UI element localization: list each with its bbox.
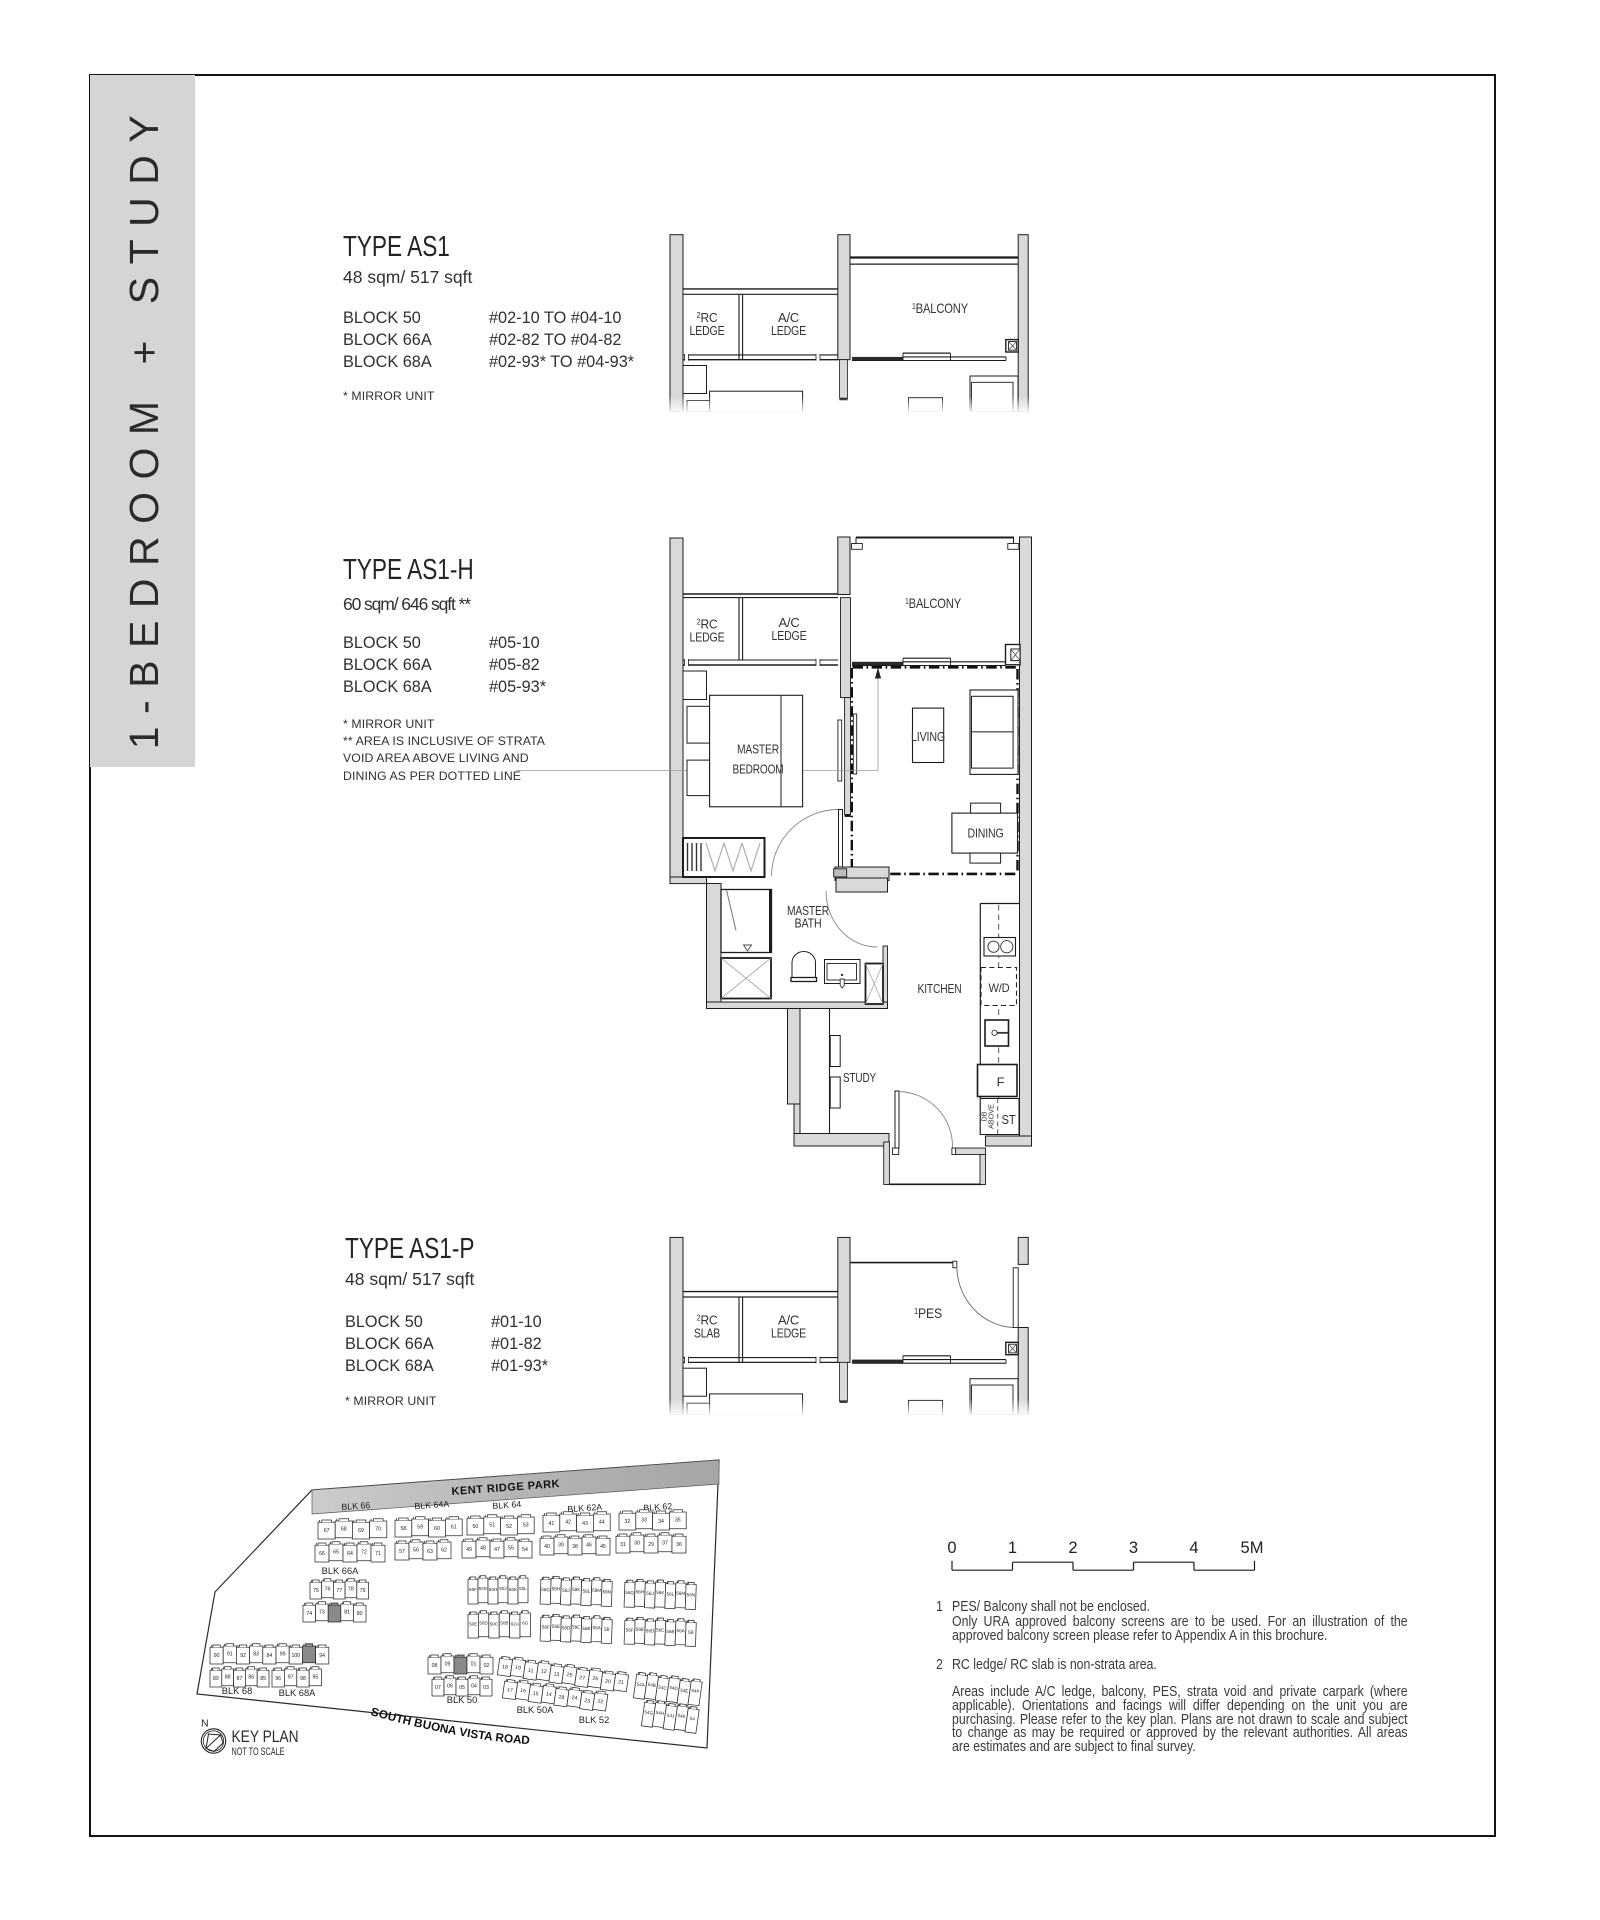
svg-text:32: 32 <box>625 1519 631 1525</box>
svg-text:BLK 50A: BLK 50A <box>517 1705 554 1715</box>
svg-text:58L: 58L <box>583 1589 591 1594</box>
svg-text:65: 65 <box>333 1550 339 1556</box>
svg-text:09: 09 <box>445 1662 451 1668</box>
svg-text:50K: 50K <box>509 1587 518 1592</box>
svg-text:58K: 58K <box>572 1587 581 1592</box>
svg-text:58E: 58E <box>552 1624 560 1629</box>
svg-text:17: 17 <box>507 1687 514 1694</box>
svg-text:02: 02 <box>484 1663 490 1669</box>
svg-text:99: 99 <box>280 1652 286 1658</box>
svg-text:36: 36 <box>676 1542 682 1548</box>
svg-text:62A: 62A <box>511 1622 520 1627</box>
svg-text:29: 29 <box>648 1542 654 1548</box>
svg-text:58F: 58F <box>542 1625 550 1630</box>
svg-text:14: 14 <box>545 1691 552 1698</box>
svg-text:20: 20 <box>605 1679 612 1686</box>
svg-text:50D: 50D <box>479 1620 488 1625</box>
svg-text:55: 55 <box>508 1546 514 1552</box>
svg-text:58D: 58D <box>562 1625 571 1630</box>
svg-text:56A: 56A <box>593 1625 602 1630</box>
svg-text:2: 2 <box>1068 1539 1077 1557</box>
svg-text:50E: 50E <box>469 1622 477 1627</box>
svg-text:43: 43 <box>582 1521 588 1527</box>
svg-text:85: 85 <box>260 1676 266 1682</box>
svg-text:56N: 56N <box>687 1592 696 1597</box>
svg-text:0: 0 <box>947 1539 956 1557</box>
svg-text:04: 04 <box>471 1684 477 1690</box>
svg-text:23: 23 <box>584 1698 591 1705</box>
svg-text:6G: 6G <box>522 1620 529 1625</box>
svg-text:81: 81 <box>344 1610 350 1616</box>
svg-text:LEDGE: LEDGE <box>690 323 725 338</box>
svg-text:84: 84 <box>267 1653 273 1659</box>
svg-text:68: 68 <box>341 1527 347 1533</box>
svg-text:69: 69 <box>358 1528 364 1534</box>
svg-text:56H: 56H <box>636 1589 645 1594</box>
svg-text:56B: 56B <box>666 1629 674 1634</box>
svg-text:45: 45 <box>600 1544 606 1550</box>
svg-text:33: 33 <box>641 1518 647 1524</box>
svg-text:BLK 52: BLK 52 <box>579 1715 610 1725</box>
svg-text:1: 1 <box>1008 1539 1017 1557</box>
svg-text:77: 77 <box>336 1588 342 1594</box>
svg-text:18: 18 <box>502 1664 509 1671</box>
svg-text:67: 67 <box>324 1528 330 1534</box>
svg-text:98: 98 <box>300 1676 306 1682</box>
svg-text:70: 70 <box>375 1527 381 1533</box>
svg-text:83: 83 <box>253 1652 259 1658</box>
svg-text:MASTER: MASTER <box>737 742 779 757</box>
svg-text:11: 11 <box>528 1668 534 1675</box>
svg-text:LEDGE: LEDGE <box>772 628 807 643</box>
svg-text:94: 94 <box>319 1653 325 1659</box>
svg-text:50H: 50H <box>489 1587 497 1592</box>
svg-text:ABOVE: ABOVE <box>987 1104 996 1129</box>
svg-text:42: 42 <box>565 1520 571 1526</box>
svg-text:58B: 58B <box>582 1626 590 1631</box>
svg-text:54J: 54J <box>667 1713 675 1719</box>
svg-text:N: N <box>201 1718 209 1730</box>
svg-text:26: 26 <box>592 1676 599 1683</box>
svg-text:56K: 56K <box>656 1590 665 1595</box>
svg-text:37: 37 <box>662 1541 668 1547</box>
svg-text:BLK 64: BLK 64 <box>492 1499 522 1511</box>
svg-text:BEDROOM: BEDROOM <box>733 762 784 777</box>
svg-text:39: 39 <box>558 1543 564 1549</box>
svg-text:25: 25 <box>566 1672 573 1679</box>
svg-text:79: 79 <box>360 1588 366 1594</box>
svg-text:51: 51 <box>489 1523 495 1529</box>
svg-text:52: 52 <box>506 1524 512 1530</box>
svg-text:62: 62 <box>441 1548 447 1554</box>
svg-text:86: 86 <box>248 1675 254 1681</box>
svg-text:56C: 56C <box>656 1627 665 1632</box>
svg-text:LEDGE: LEDGE <box>771 323 806 338</box>
svg-text:95: 95 <box>313 1675 319 1681</box>
svg-text:56: 56 <box>413 1548 419 1554</box>
svg-text:1BALCONY: 1BALCONY <box>905 596 961 611</box>
svg-text:15: 15 <box>532 1691 539 1698</box>
svg-text:38: 38 <box>572 1544 578 1550</box>
svg-text:59: 59 <box>417 1525 423 1531</box>
svg-text:58N: 58N <box>603 1589 612 1594</box>
svg-text:27: 27 <box>579 1675 586 1682</box>
svg-text:BATH: BATH <box>795 916 822 931</box>
svg-text:50L: 50L <box>519 1586 527 1591</box>
svg-text:BLK 50: BLK 50 <box>447 1695 478 1705</box>
svg-text:BLK 66: BLK 66 <box>341 1500 371 1512</box>
svg-text:80: 80 <box>357 1611 363 1617</box>
svg-text:5M: 5M <box>1241 1539 1264 1557</box>
svg-text:58J: 58J <box>562 1588 570 1593</box>
svg-text:16: 16 <box>520 1688 527 1695</box>
svg-text:KITCHEN: KITCHEN <box>918 981 962 996</box>
svg-text:13: 13 <box>553 1671 560 1678</box>
svg-text:5B: 5B <box>688 1630 694 1635</box>
svg-text:41: 41 <box>549 1521 555 1527</box>
svg-text:56J: 56J <box>646 1591 654 1596</box>
svg-text:64: 64 <box>347 1551 353 1557</box>
svg-text:91: 91 <box>227 1652 233 1658</box>
svg-text:BLK 66A: BLK 66A <box>322 1566 359 1576</box>
svg-text:56F: 56F <box>626 1628 634 1633</box>
svg-text:F: F <box>997 1075 1005 1090</box>
svg-text:LEDGE: LEDGE <box>771 1326 806 1341</box>
svg-text:50B: 50B <box>500 1620 508 1625</box>
svg-text:31: 31 <box>620 1542 626 1548</box>
svg-text:35: 35 <box>675 1518 681 1524</box>
svg-text:SLAB: SLAB <box>694 1326 720 1341</box>
svg-text:47: 47 <box>494 1547 500 1553</box>
svg-text:03: 03 <box>483 1685 489 1691</box>
svg-text:87: 87 <box>237 1676 243 1682</box>
svg-text:75: 75 <box>313 1588 319 1594</box>
svg-text:50G: 50G <box>479 1586 488 1591</box>
svg-text:66: 66 <box>319 1551 325 1557</box>
svg-text:LIVING: LIVING <box>911 729 945 744</box>
svg-text:53: 53 <box>523 1523 529 1529</box>
svg-text:W/D: W/D <box>989 981 1010 995</box>
svg-text:1PES: 1PES <box>914 1306 942 1321</box>
svg-text:97: 97 <box>288 1675 294 1681</box>
svg-text:56D: 56D <box>646 1628 655 1633</box>
svg-text:58G: 58G <box>541 1587 550 1592</box>
svg-text:ST: ST <box>1002 1112 1016 1127</box>
svg-text:21: 21 <box>618 1679 625 1686</box>
svg-text:LEDGE: LEDGE <box>690 630 725 645</box>
svg-text:58: 58 <box>401 1526 407 1532</box>
svg-text:48: 48 <box>480 1546 486 1552</box>
svg-text:92: 92 <box>240 1653 246 1659</box>
svg-text:4: 4 <box>1189 1539 1198 1557</box>
svg-text:24: 24 <box>571 1695 578 1702</box>
svg-text:KEY PLAN: KEY PLAN <box>232 1727 299 1746</box>
svg-text:73: 73 <box>319 1610 325 1616</box>
svg-text:61: 61 <box>451 1525 457 1531</box>
svg-text:06: 06 <box>447 1684 453 1690</box>
svg-text:STUDY: STUDY <box>843 1070 877 1085</box>
svg-text:58M: 58M <box>592 1588 601 1593</box>
svg-text:76: 76 <box>325 1587 331 1593</box>
svg-text:BLK 68A: BLK 68A <box>279 1688 316 1698</box>
svg-text:56A: 56A <box>677 1628 686 1633</box>
svg-text:49: 49 <box>466 1547 472 1553</box>
svg-text:46: 46 <box>586 1543 592 1549</box>
svg-text:78: 78 <box>348 1587 354 1593</box>
svg-text:12: 12 <box>540 1668 547 1675</box>
svg-text:NOT TO SCALE: NOT TO SCALE <box>232 1746 285 1758</box>
svg-text:40: 40 <box>544 1544 550 1550</box>
svg-text:56L: 56L <box>667 1592 675 1597</box>
svg-text:54: 54 <box>522 1547 528 1553</box>
svg-text:22: 22 <box>597 1699 604 1706</box>
svg-text:34: 34 <box>658 1519 664 1525</box>
svg-text:90: 90 <box>214 1653 220 1659</box>
svg-text:30: 30 <box>634 1541 640 1547</box>
svg-text:58H: 58H <box>552 1586 561 1591</box>
svg-text:07: 07 <box>435 1685 441 1691</box>
svg-text:01: 01 <box>471 1662 477 1668</box>
svg-text:08: 08 <box>432 1663 438 1669</box>
svg-text:89: 89 <box>213 1676 219 1682</box>
svg-text:19: 19 <box>515 1665 522 1672</box>
svg-text:74: 74 <box>306 1611 312 1617</box>
svg-text:56G: 56G <box>625 1590 634 1595</box>
svg-text:58C: 58C <box>572 1624 581 1629</box>
svg-text:44: 44 <box>599 1520 605 1526</box>
svg-text:56E: 56E <box>636 1627 644 1632</box>
svg-text:1BALCONY: 1BALCONY <box>912 301 968 316</box>
svg-text:56M: 56M <box>676 1591 685 1596</box>
svg-text:BLK 68: BLK 68 <box>222 1686 253 1696</box>
svg-text:50: 50 <box>473 1524 479 1530</box>
svg-text:50F: 50F <box>469 1587 477 1592</box>
svg-text:63: 63 <box>427 1549 433 1555</box>
svg-text:3: 3 <box>1129 1539 1138 1557</box>
svg-text:96: 96 <box>275 1676 281 1682</box>
svg-text:88: 88 <box>225 1675 231 1681</box>
svg-text:DINING: DINING <box>968 826 1004 841</box>
svg-text:50J: 50J <box>499 1586 506 1591</box>
svg-text:60: 60 <box>434 1526 440 1532</box>
svg-text:57: 57 <box>399 1549 405 1555</box>
svg-text:5B: 5B <box>604 1627 610 1632</box>
svg-text:05: 05 <box>459 1685 465 1691</box>
svg-text:71: 71 <box>375 1551 381 1557</box>
svg-text:50C: 50C <box>490 1622 499 1627</box>
svg-text:100: 100 <box>291 1653 300 1659</box>
svg-text:72: 72 <box>361 1550 367 1556</box>
svg-text:28: 28 <box>558 1694 565 1701</box>
